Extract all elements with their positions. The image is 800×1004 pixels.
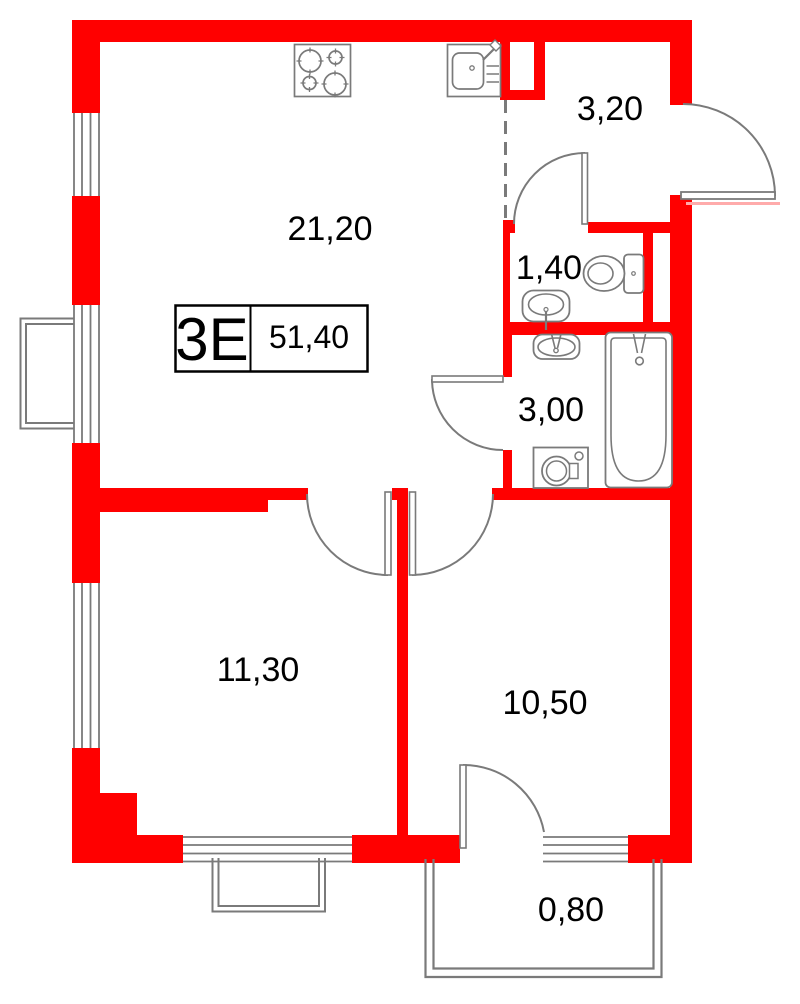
kitchen-sink-icon	[448, 40, 502, 97]
bedroom-door-leaf	[385, 492, 391, 575]
window-bottom-1	[183, 835, 352, 863]
left-wall-seg3	[72, 443, 100, 583]
door-pier-stub	[392, 488, 408, 500]
entry-door-arc	[683, 104, 775, 196]
wall-living-bedroom-thin	[268, 488, 308, 500]
wc-area-label: 1,40	[516, 249, 582, 287]
entry-door-leaf	[681, 192, 775, 199]
floor-plan-svg: 21,20 3,20 1,40 3,00 11,30 10,50 0,80 3Е…	[0, 0, 800, 1004]
top-wall	[72, 20, 692, 42]
window-box-bottom	[213, 858, 326, 912]
wc-duct-partition	[643, 233, 653, 322]
washing-machine-icon	[534, 448, 589, 489]
room-labels: 21,20 3,20 1,40 3,00 11,30 10,50 0,80	[217, 90, 643, 929]
right-wall-seg2	[670, 195, 692, 863]
window-box-left	[21, 319, 75, 429]
unit-label-box: 3Е 51,40	[175, 306, 367, 374]
wc-door-arc	[514, 153, 585, 224]
partition-bedroom-room	[397, 500, 408, 835]
bath-left-wall-lower	[503, 450, 512, 488]
bottom-wall-seg1	[72, 835, 183, 863]
left-wall-seg1	[72, 20, 100, 113]
window-left-2	[72, 305, 100, 443]
right-wall-seg1	[670, 20, 692, 105]
entry-door-sill	[686, 202, 780, 205]
bathtub-icon	[606, 333, 673, 488]
window-bottom-2	[543, 835, 628, 863]
wc-door-leaf	[582, 153, 588, 224]
bath-left-wall-upper	[503, 335, 512, 377]
unit-total-area: 51,40	[269, 319, 349, 355]
wc-top-wall	[588, 222, 670, 233]
bottom-wall-seg2	[352, 835, 460, 863]
wc-left-wall	[503, 220, 510, 335]
vent-shaft-inner	[510, 42, 534, 90]
room-door-arc	[412, 494, 493, 575]
room-door-leaf	[410, 492, 416, 575]
unit-code: 3Е	[175, 306, 248, 373]
floor-plan-page: 21,20 3,20 1,40 3,00 11,30 10,50 0,80 3Е…	[0, 0, 800, 1004]
bedroom-door-arc	[307, 494, 388, 575]
window-left-3	[72, 583, 100, 748]
left-wall-seg2	[72, 196, 100, 305]
toilet-icon	[584, 255, 644, 294]
bathroom-area-label: 3,00	[518, 391, 584, 429]
balcony-area-label: 0,80	[538, 891, 604, 929]
interior-walls	[100, 42, 692, 835]
window-left-1	[72, 113, 100, 196]
bedroom-area-label: 11,30	[217, 651, 300, 689]
balcony-door-arc	[463, 765, 544, 832]
living-kitchen-area-label: 21,20	[287, 210, 372, 248]
wall-bath-rooms	[492, 488, 692, 500]
bathroom-sink-icon	[534, 334, 580, 359]
exterior-walls	[72, 20, 692, 863]
bathroom-door-leaf	[432, 376, 503, 382]
bathroom-door-arc	[432, 379, 503, 450]
hallway-area-label: 3,20	[577, 90, 643, 128]
balcony-door-leaf	[460, 765, 466, 848]
room-area-label: 10,50	[502, 684, 587, 722]
wall-living-bedroom	[100, 488, 268, 512]
stove-icon	[295, 45, 351, 98]
